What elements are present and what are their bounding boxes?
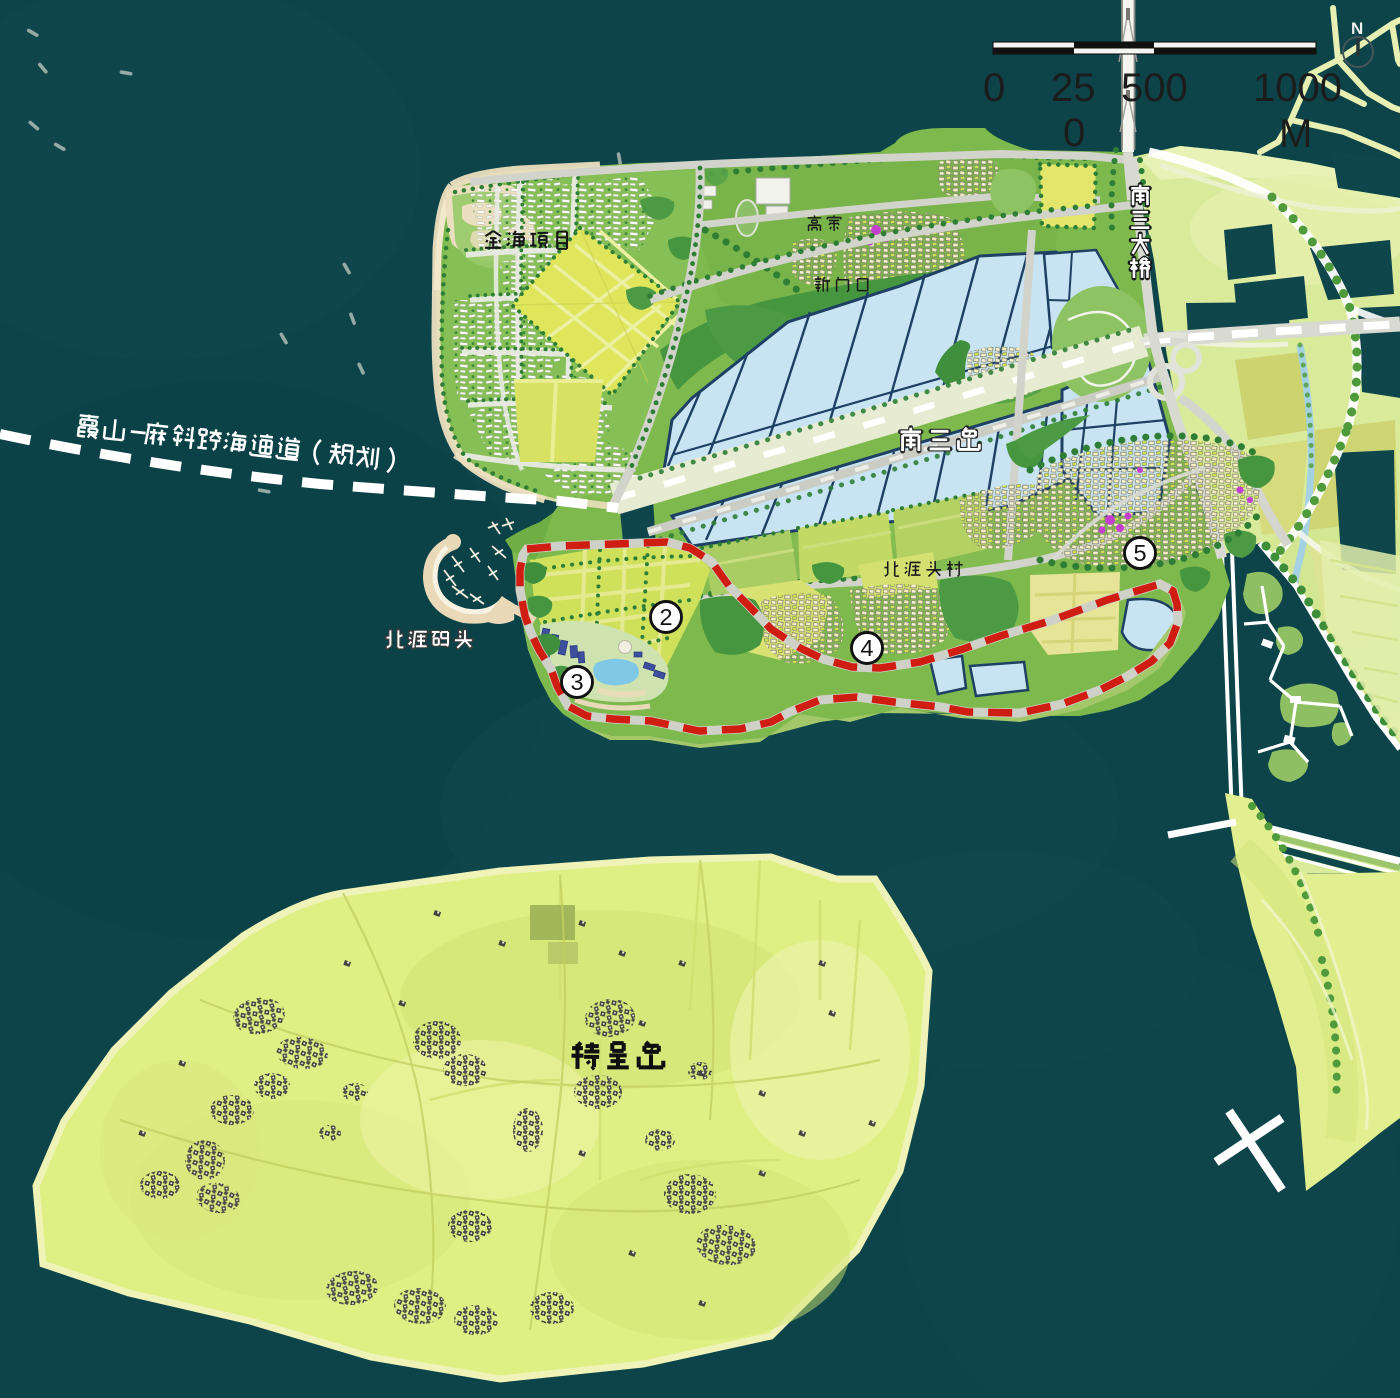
svg-text:4: 4 <box>860 635 873 661</box>
svg-text:2: 2 <box>659 604 672 630</box>
svg-text:0: 0 <box>1063 111 1085 155</box>
svg-text:500: 500 <box>1121 66 1188 110</box>
svg-text:M: M <box>1279 112 1312 156</box>
svg-text:3: 3 <box>570 669 583 695</box>
svg-text:25: 25 <box>1051 66 1096 110</box>
svg-text:5: 5 <box>1133 540 1146 566</box>
svg-text:1000: 1000 <box>1253 66 1342 110</box>
svg-text:N: N <box>1351 19 1363 38</box>
svg-text:0: 0 <box>983 66 1005 110</box>
